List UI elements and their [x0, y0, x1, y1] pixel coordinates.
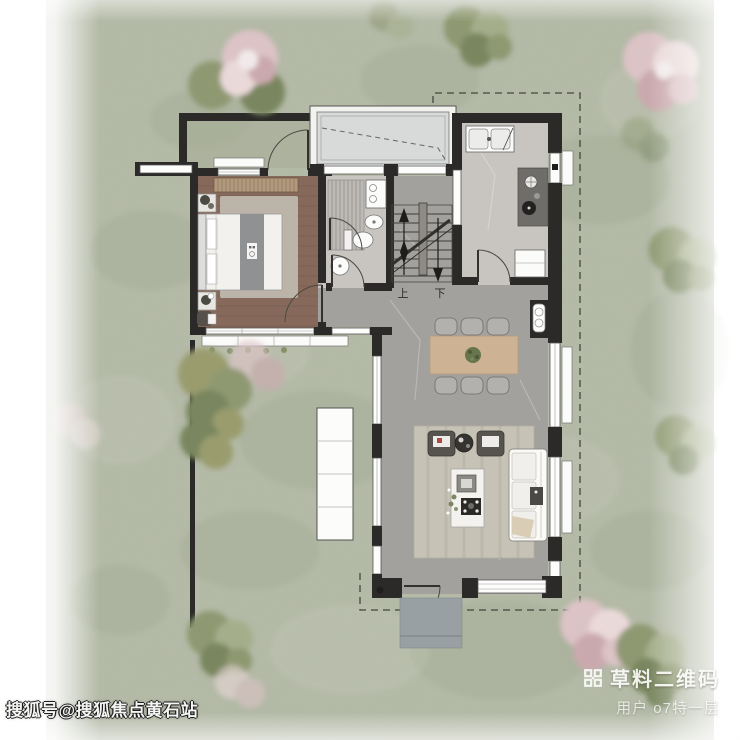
courtyard-fence-north — [179, 113, 310, 121]
red-pillow — [437, 438, 442, 443]
faucet — [487, 137, 491, 141]
window — [478, 580, 546, 593]
wall-detail-dot — [552, 164, 558, 170]
living-area — [414, 426, 547, 558]
wall-segment — [518, 277, 548, 285]
wall-segment — [260, 168, 268, 176]
wall-segment — [510, 277, 518, 285]
porch-column — [377, 587, 384, 594]
wardrobe — [214, 178, 298, 192]
wall-segment — [384, 164, 398, 176]
planter-bench — [317, 408, 353, 540]
armchair — [428, 431, 455, 456]
nightstand-plant — [200, 195, 210, 205]
dining-chair — [461, 377, 483, 394]
wall-segment — [548, 183, 562, 343]
dining-chair — [435, 318, 457, 335]
wall-segment — [310, 164, 324, 176]
side-table — [455, 434, 473, 452]
window-sill — [562, 151, 573, 185]
stair-up-label: 上 — [398, 287, 409, 300]
window-sill — [562, 347, 572, 423]
window — [140, 165, 192, 173]
bed — [198, 214, 282, 290]
window — [453, 170, 461, 225]
wall-segment — [318, 176, 326, 283]
site-plan-image: 上 下 — [0, 0, 740, 740]
wall-segment — [452, 277, 478, 285]
armchair — [477, 431, 504, 456]
window — [550, 561, 560, 578]
wall-segment — [364, 283, 392, 291]
wall-segment — [190, 168, 198, 335]
wall-segment — [318, 322, 326, 335]
fridge — [515, 250, 545, 277]
skylight — [310, 106, 456, 170]
caoliao-user: 用户 o7特一层 — [583, 697, 720, 718]
headboard — [198, 214, 206, 290]
bedroom-desk-item — [208, 314, 216, 324]
wall-segment — [372, 424, 382, 458]
qr-icon — [583, 668, 603, 688]
wall-segment — [548, 427, 562, 457]
stair-down-label: 下 — [435, 288, 446, 300]
table-plant-sprig — [452, 495, 457, 500]
wall-segment — [452, 113, 562, 123]
window-sill — [562, 461, 572, 533]
pillow — [207, 254, 217, 284]
wall-segment — [462, 578, 478, 598]
dining-chair — [487, 377, 509, 394]
wall-segment — [452, 113, 462, 170]
wall-segment — [190, 327, 206, 335]
cooktop — [518, 168, 548, 226]
window — [373, 546, 381, 574]
porch — [400, 598, 462, 648]
watermark-caoliao: 草料二维码 用户 o7特一层 — [583, 663, 720, 718]
window-sill — [214, 158, 264, 167]
toilet-tank — [344, 230, 352, 250]
caoliao-title: 草料二维码 — [610, 663, 720, 692]
site-plan-svg: 上 下 — [0, 0, 740, 740]
washer — [366, 180, 386, 208]
sofa-tray — [530, 487, 543, 505]
wall-segment — [372, 526, 382, 546]
wall-segment — [548, 113, 562, 153]
window — [332, 328, 370, 334]
dining-chair — [435, 377, 457, 394]
window — [398, 166, 446, 174]
toilet — [344, 230, 373, 250]
sofa-cushion — [512, 453, 536, 480]
dining-chair — [487, 318, 509, 335]
kitchen-sink — [466, 126, 514, 152]
dining-chair — [461, 318, 483, 335]
dining-area — [430, 318, 518, 394]
wall-segment — [372, 330, 382, 356]
sofa — [509, 449, 547, 541]
coffee-table — [447, 469, 485, 527]
wall-segment — [452, 225, 462, 285]
wall-segment — [372, 578, 402, 598]
table-plant — [465, 347, 481, 363]
window — [324, 166, 384, 174]
window-sill — [202, 336, 348, 346]
toilet-bowl — [353, 232, 373, 248]
wall-segment — [548, 537, 562, 561]
pillow — [207, 219, 217, 249]
watermark-sohu: 搜狐号@搜狐焦点黄石站 — [6, 696, 198, 721]
